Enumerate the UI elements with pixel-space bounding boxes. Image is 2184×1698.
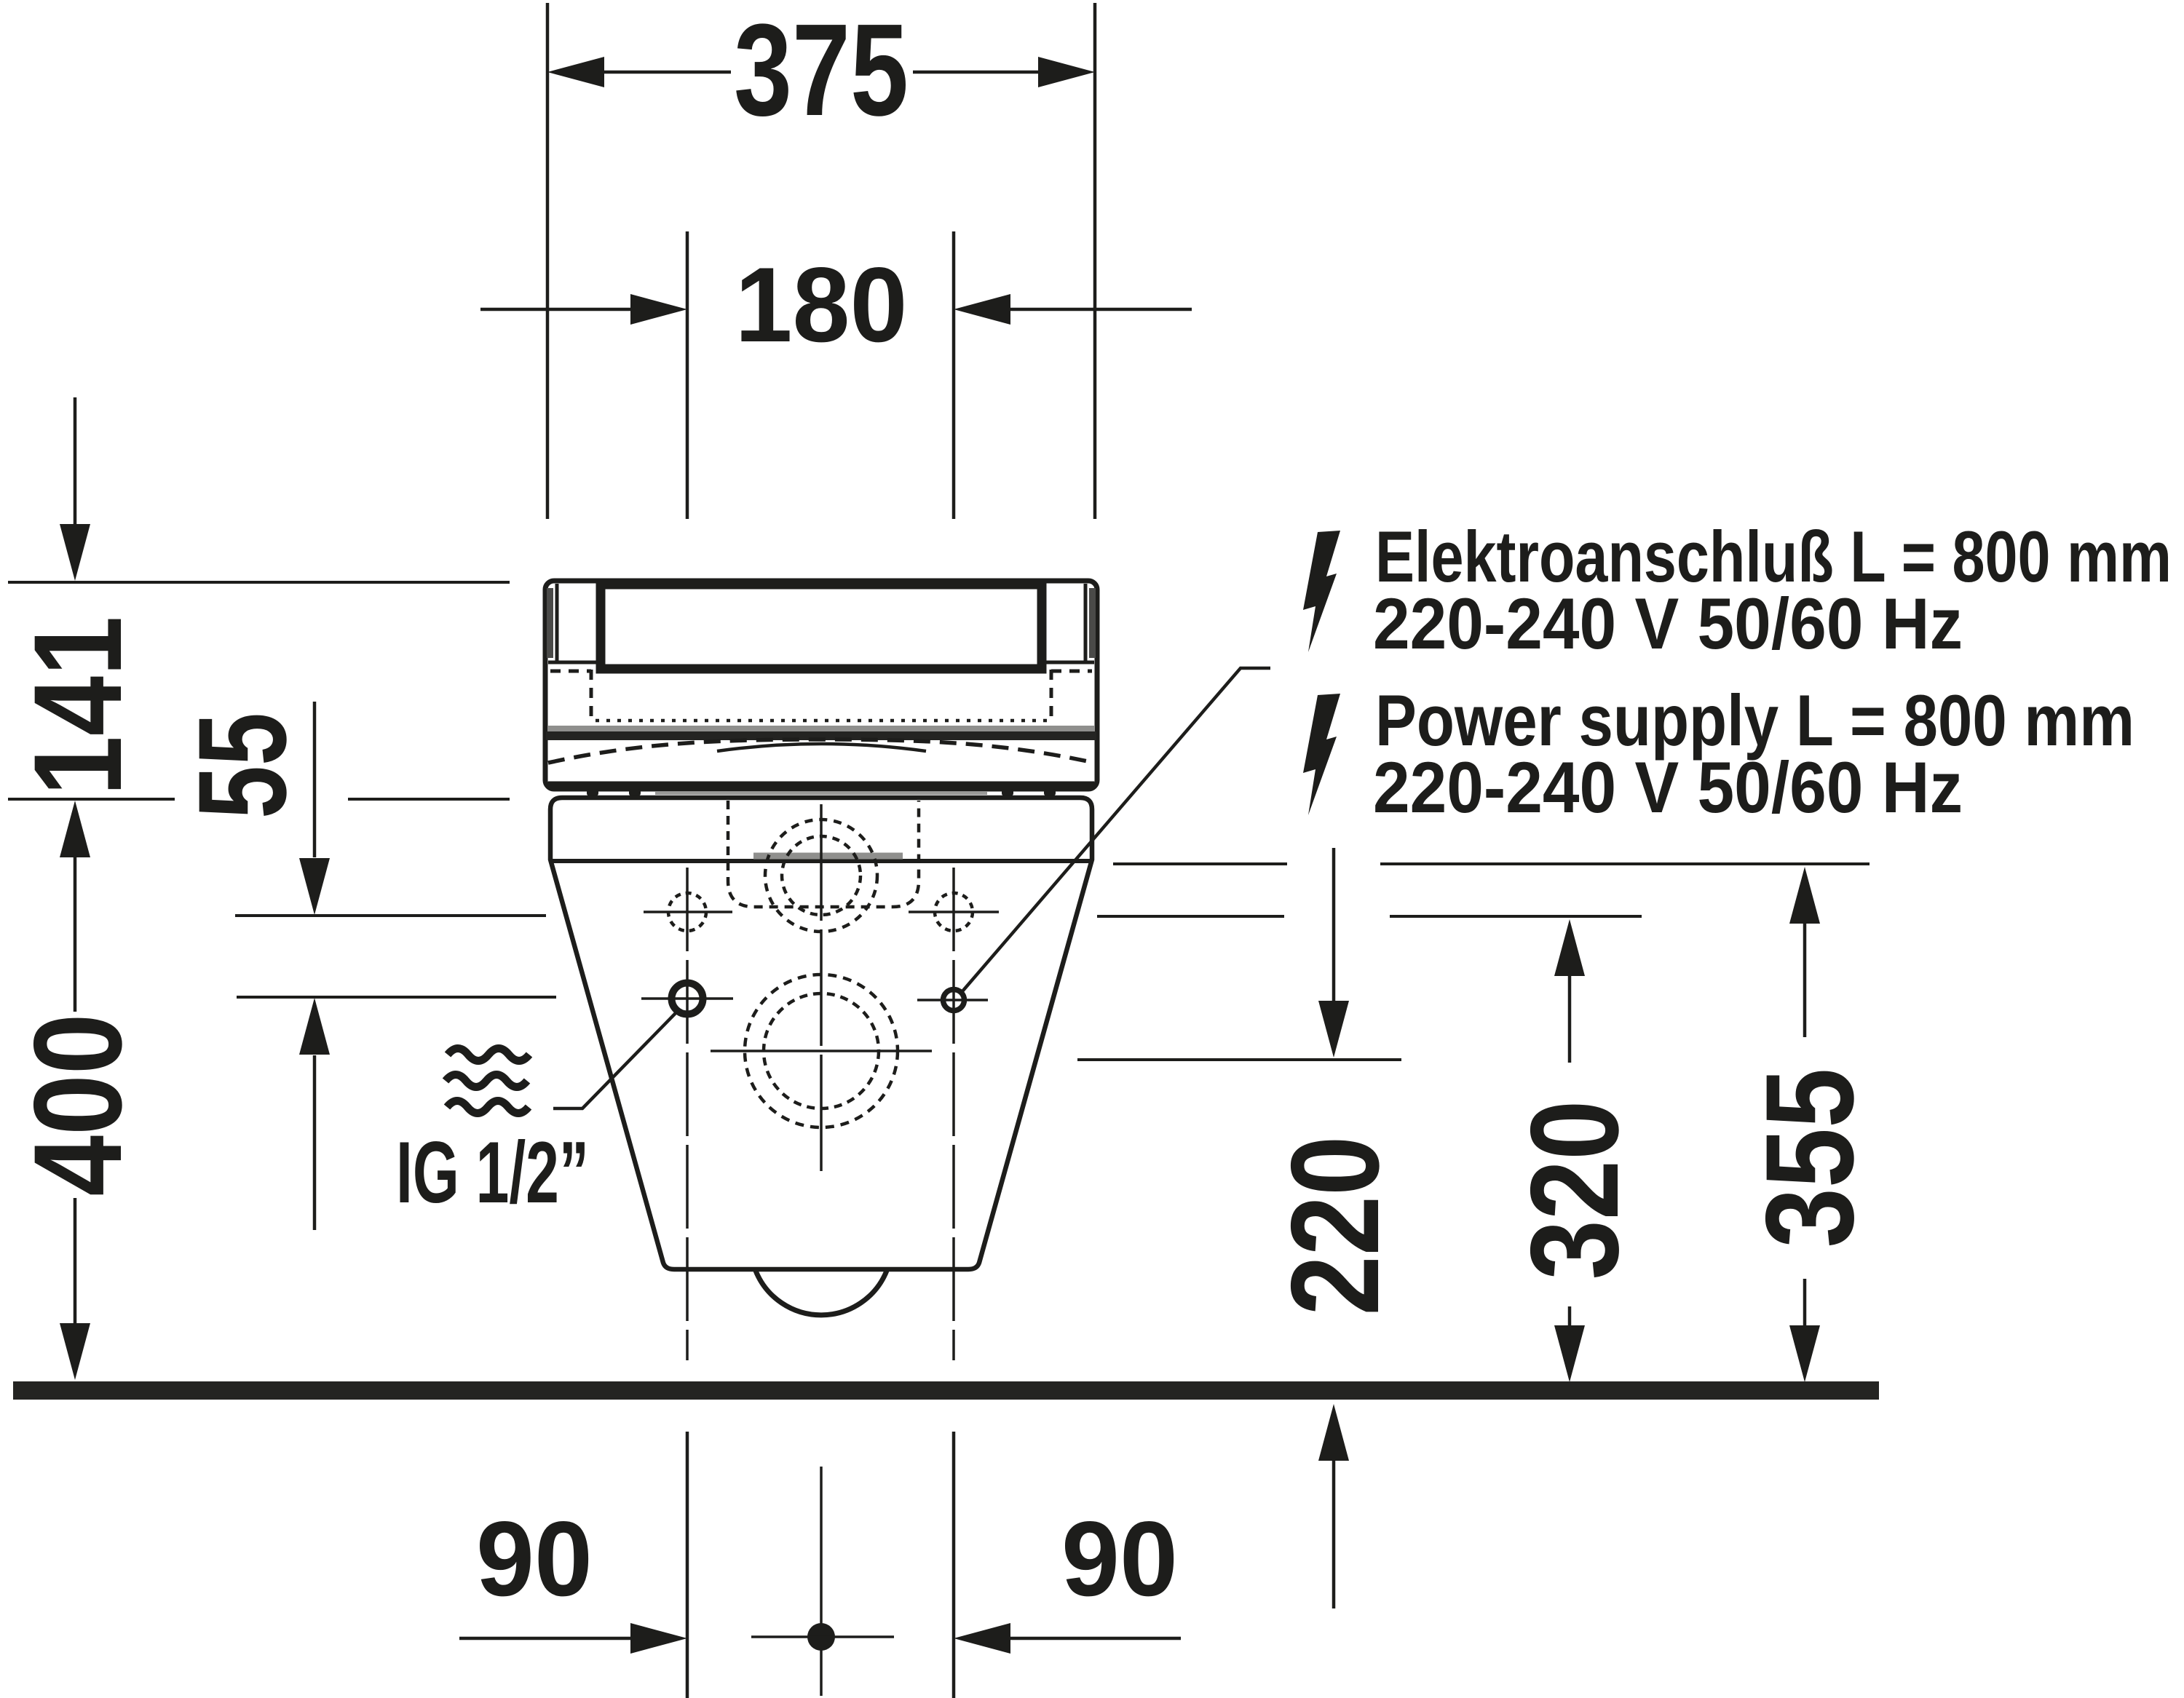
svg-text:355: 355 — [1740, 1068, 1880, 1248]
svg-text:375: 375 — [734, 0, 909, 143]
svg-text:220: 220 — [1265, 1136, 1405, 1316]
svg-text:180: 180 — [735, 245, 908, 364]
svg-text:141: 141 — [8, 616, 148, 796]
svg-text:220-240 V 50/60 Hz: 220-240 V 50/60 Hz — [1373, 747, 1963, 828]
svg-text:90: 90 — [476, 1499, 593, 1618]
svg-text:400: 400 — [8, 1014, 148, 1197]
svg-text:90: 90 — [1061, 1499, 1178, 1618]
svg-text:220-240 V 50/60 Hz: 220-240 V 50/60 Hz — [1373, 583, 1963, 664]
svg-text:55: 55 — [173, 713, 312, 819]
svg-text:IG 1/2”: IG 1/2” — [396, 1124, 589, 1221]
svg-text:320: 320 — [1505, 1100, 1645, 1280]
